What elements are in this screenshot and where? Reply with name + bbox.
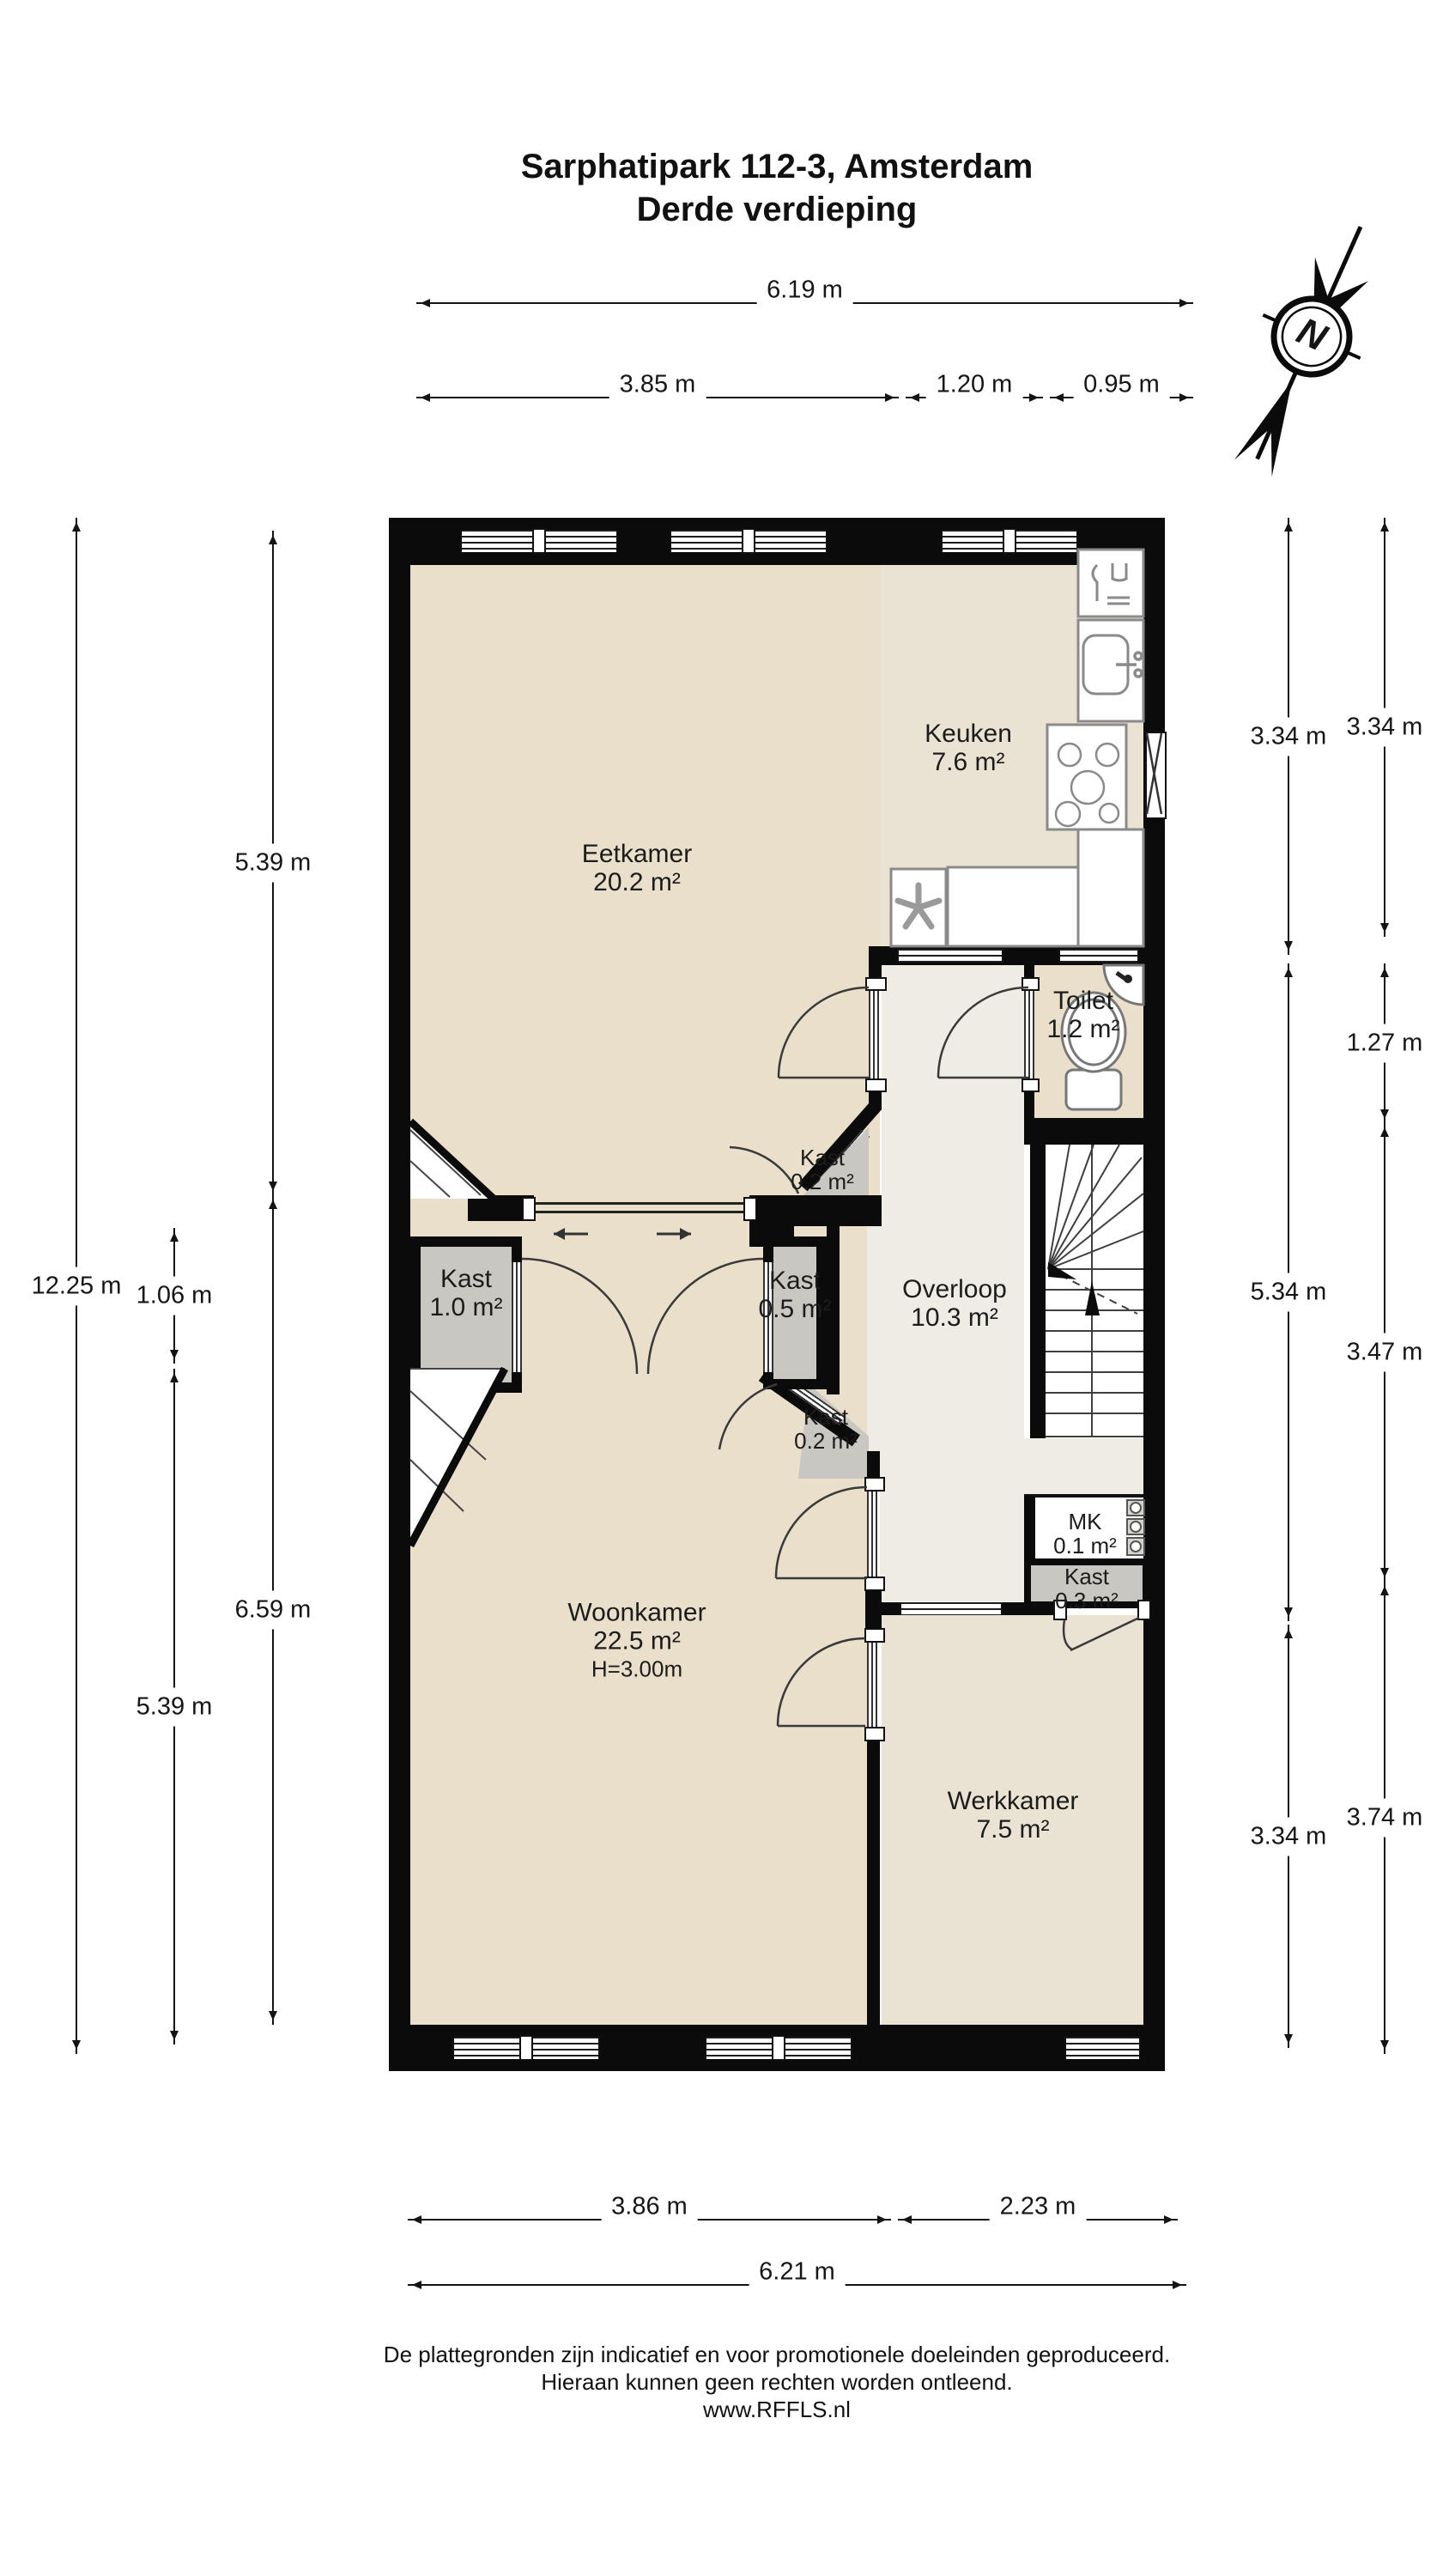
- footer-website: www.RFFLS.nl: [219, 2396, 1335, 2423]
- door-arc-overloop-woonkamer: [776, 1487, 867, 1578]
- label-kast-lower02: Kast0.2 m²: [794, 1405, 858, 1453]
- door-arc-kast03: [1064, 1619, 1072, 1649]
- label-toilet: Toilet1.2 m²: [1046, 987, 1119, 1043]
- door-arc-kast-upper02: [730, 1147, 798, 1194]
- dim-right-outer-top: 3.34 m: [1384, 518, 1385, 937]
- dim-top-1: 3.85 m: [416, 397, 899, 398]
- stove: [1047, 725, 1126, 829]
- label-kast05: Kast0.5 m²: [758, 1267, 831, 1323]
- label-meterkast: MK0.1 m²: [1053, 1510, 1117, 1558]
- stairs-start-wedge: [1048, 1262, 1076, 1279]
- dim-top-3: 0.95 m: [1050, 397, 1193, 398]
- dim-right-outer-bottom: 3.74 m: [1384, 1582, 1385, 2054]
- door-arc-woonkamer-werkkamer: [778, 1638, 865, 1726]
- dim-left-upper: 5.39 m: [272, 531, 274, 1195]
- dim-right-inner-top: 3.34 m: [1288, 518, 1289, 955]
- label-woonkamer: Woonkamer 22.5 m² H=3.00m: [567, 1599, 706, 1684]
- label-kast03: Kast0.3 m²: [1055, 1564, 1119, 1613]
- dim-right-toilet: 1.27 m: [1384, 963, 1385, 1123]
- arrow-right-icon: [680, 1228, 691, 1240]
- door-leaf-kast03: [1070, 1618, 1139, 1650]
- dim-right-inner-bottom: 3.34 m: [1288, 1625, 1289, 2048]
- dishwasher: [1078, 550, 1143, 617]
- counter-right: [1078, 829, 1143, 946]
- flue-x-icon: [1147, 733, 1161, 814]
- label-kast-upper02: Kast0.2 m²: [791, 1145, 854, 1194]
- dim-left-lower: 5.39 m: [173, 1369, 175, 2044]
- door-arc-toilet: [938, 987, 1028, 1078]
- dim-left-mid-small: 1.06 m: [173, 1228, 175, 1364]
- dim-bottom-2: 2.23 m: [898, 2219, 1178, 2221]
- footer-disclaimer-1: De plattegronden zijn indicatief en voor…: [219, 2341, 1335, 2368]
- label-overloop: Overloop10.3 m²: [902, 1275, 1007, 1332]
- dim-right-stairs: 3.47 m: [1384, 1123, 1385, 1582]
- label-werkkamer: Werkkamer7.5 m²: [948, 1787, 1079, 1844]
- dim-bottom-total: 6.21 m: [408, 2284, 1186, 2286]
- chimney-edge-upper: [410, 1121, 494, 1199]
- floorplan-page: Sarphatipark 112-3, Amsterdam Derde verd…: [0, 0, 1449, 2576]
- arrow-left-icon: [554, 1228, 565, 1240]
- dim-bottom-1: 3.86 m: [408, 2219, 891, 2221]
- stairs-up-arrow: [1085, 1281, 1100, 1315]
- door-arc-kast05: [648, 1259, 763, 1374]
- meter-dials: [1131, 1503, 1141, 1552]
- label-kast10: Kast1.0 m²: [429, 1265, 502, 1321]
- staircase: [1046, 1145, 1143, 1437]
- footer-disclaimer-2: Hieraan kunnen geen rechten worden ontle…: [219, 2368, 1335, 2396]
- door-arc-kast10: [522, 1259, 637, 1374]
- dim-top-total: 6.19 m: [416, 302, 1193, 304]
- dim-top-2: 1.20 m: [906, 397, 1043, 398]
- counter-bottom: [948, 867, 1078, 946]
- door-arc-eetkamer: [779, 987, 869, 1078]
- label-eetkamer: Eetkamer20.2 m²: [582, 840, 692, 896]
- dim-left-inner-lower: 6.59 m: [272, 1195, 274, 2025]
- dim-right-overloop: 5.34 m: [1288, 963, 1289, 1621]
- dim-left-total: 12.25 m: [76, 518, 77, 2054]
- door-arc-kast-lower02: [719, 1384, 777, 1449]
- wc-tank: [1066, 1070, 1121, 1109]
- chimney-edge-lower: [410, 1369, 505, 1546]
- label-keuken: Keuken7.6 m²: [925, 720, 1012, 776]
